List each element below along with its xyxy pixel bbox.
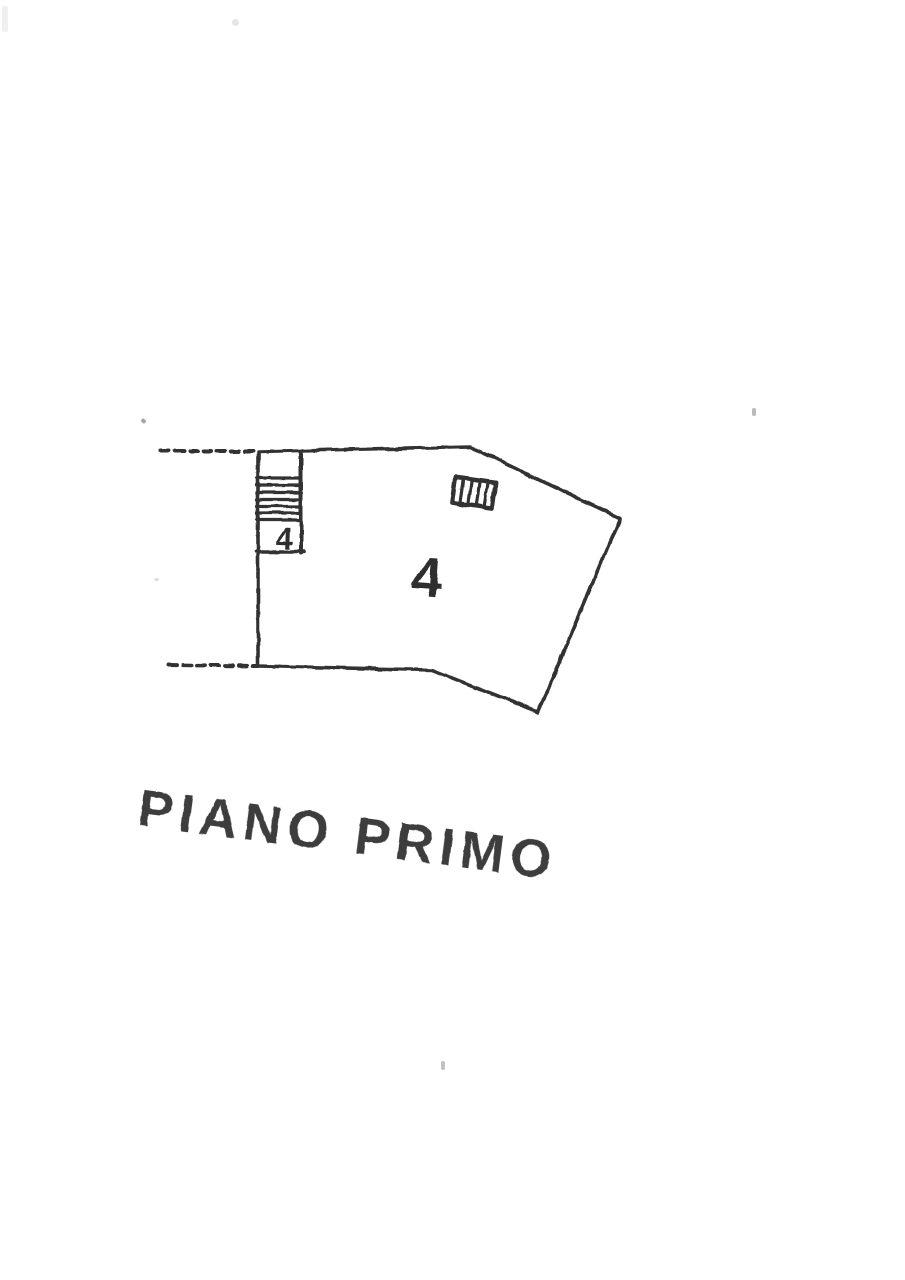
stairs-symbol: [257, 478, 301, 520]
scan-speck: [752, 408, 756, 416]
flue-hatch-lines: [460, 479, 487, 506]
flue-outline: [452, 477, 495, 508]
dashed-wall-bottom-left: [169, 665, 258, 666]
scan-speck: [441, 1061, 445, 1070]
scan-speck: [2, 6, 8, 32]
scanned-floorplan-page: 4 4 PIANO PRIMO: [0, 0, 905, 1280]
scan-speck: [232, 19, 239, 26]
stair-unit-number: 4: [275, 521, 294, 557]
hatched-flue-symbol: [452, 477, 495, 508]
main-room-number: 4: [410, 547, 444, 609]
floorplan-drawing: 4 4: [0, 0, 905, 1280]
scan-speck: [154, 578, 159, 581]
